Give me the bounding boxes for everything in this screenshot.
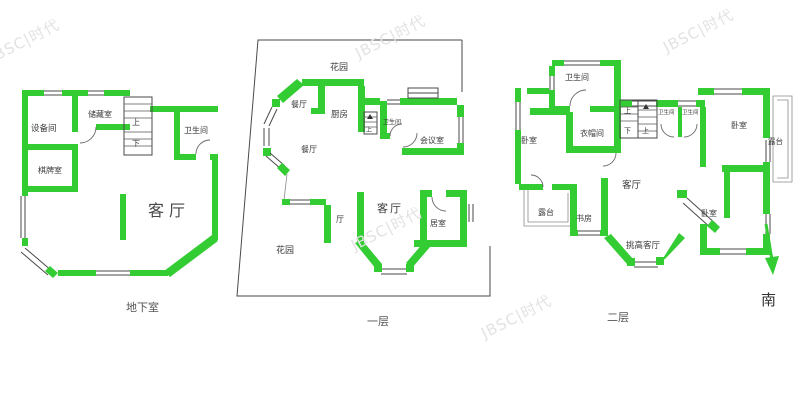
room-label-meeting-room: 会议室 xyxy=(420,135,444,145)
room-label-bathroom-1f: 卫生间 xyxy=(383,118,401,126)
room-label-study: 书房 xyxy=(576,213,592,223)
second-floor-walls xyxy=(515,60,792,267)
room-label-storage: 储藏室 xyxy=(88,109,112,119)
floorplan-canvas: 上 下 设备间 储藏室 卫生间 棋牌室 客厅 地下室 xyxy=(0,0,800,401)
entry-steps: 上 xyxy=(364,112,377,134)
room-label-garden-top: 花园 xyxy=(330,61,348,73)
south-arrow-icon xyxy=(765,256,779,275)
stairs-up-label: 上 xyxy=(132,118,140,127)
room-label-bathroom: 卫生间 xyxy=(184,125,208,135)
stairs-up-label-2: 上 xyxy=(642,126,649,135)
floor-name-basement: 地下室 xyxy=(126,300,159,314)
room-label-bathroom-main: 卫生间 xyxy=(565,72,589,82)
room-label-kitchen: 厨房 xyxy=(331,109,348,120)
stairs-up-label-1: 上 xyxy=(624,106,631,115)
first-floor-plan: 上 花园 花园 餐厅 餐厅 厨房 卫生间 会议室 厅 客厅 居室 一层 xyxy=(237,40,490,328)
second-floor-plan: 上 下 上 卫生间 卧室 衣帽间 卫生间 卫生间 卧室 露台 客厅 露台 书房 … xyxy=(515,60,792,324)
room-label-hall: 厅 xyxy=(336,215,344,224)
room-label-equipment: 设备间 xyxy=(31,123,57,134)
room-label-chess-room: 棋牌室 xyxy=(38,165,62,175)
room-label-bathroom-small-2: 卫生间 xyxy=(682,108,699,116)
room-label-terrace-right: 露台 xyxy=(768,136,783,146)
step-arrow-icon xyxy=(367,114,373,119)
room-label-living-room: 客厅 xyxy=(148,201,190,220)
stairs-down-label: 下 xyxy=(132,139,140,148)
basement-plan: 上 下 设备间 储藏室 卫生间 棋牌室 客厅 地下室 xyxy=(21,90,218,314)
room-label-bedroom-bottom-right: 卧室 xyxy=(701,208,717,218)
floorplan-image: JBSC|时代 JBSC|时代 JBSC|时代 JBSC|时代 JBSC|时代 xyxy=(0,0,800,401)
south-label: 南 xyxy=(761,291,776,309)
room-label-garden-bottom: 花园 xyxy=(276,244,294,256)
stairs-down-label: 下 xyxy=(624,127,631,135)
room-label-dining-upper: 餐厅 xyxy=(291,100,307,109)
room-label-bedroom-left: 卧室 xyxy=(521,135,537,145)
room-label-tall-living-room: 挑高客厅 xyxy=(626,240,661,251)
room-label-living-room-2f: 客厅 xyxy=(622,179,642,191)
room-label-closet: 衣帽间 xyxy=(580,128,604,138)
room-label-terrace-left: 露台 xyxy=(538,207,554,217)
room-label-bedroom-1f: 居室 xyxy=(430,218,446,228)
garden-boundary xyxy=(237,40,490,296)
room-label-bedroom-top-right: 卧室 xyxy=(731,120,747,130)
basement-walls xyxy=(21,90,218,278)
floor-name-first: 一层 xyxy=(367,315,389,328)
floor-name-second: 二层 xyxy=(607,311,629,324)
room-label-dining-lower: 餐厅 xyxy=(301,145,317,154)
room-label-bathroom-small-1: 卫生间 xyxy=(658,108,675,116)
steps-up-label: 上 xyxy=(366,126,372,134)
